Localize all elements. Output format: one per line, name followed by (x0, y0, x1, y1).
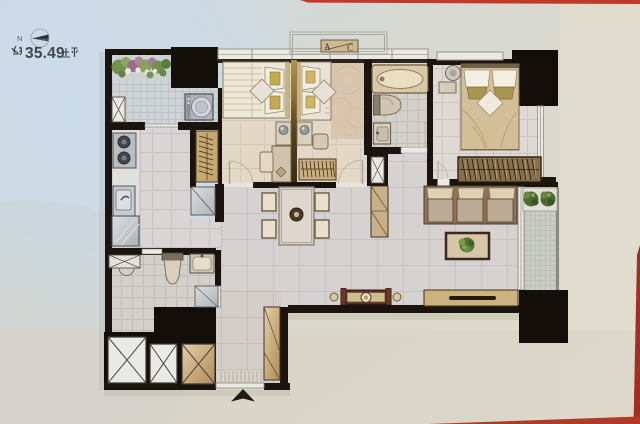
svg-text:C: C (347, 43, 353, 53)
svg-text:N: N (17, 34, 22, 43)
svg-text:35.49: 35.49 (25, 45, 65, 62)
svg-text:A: A (324, 42, 331, 52)
